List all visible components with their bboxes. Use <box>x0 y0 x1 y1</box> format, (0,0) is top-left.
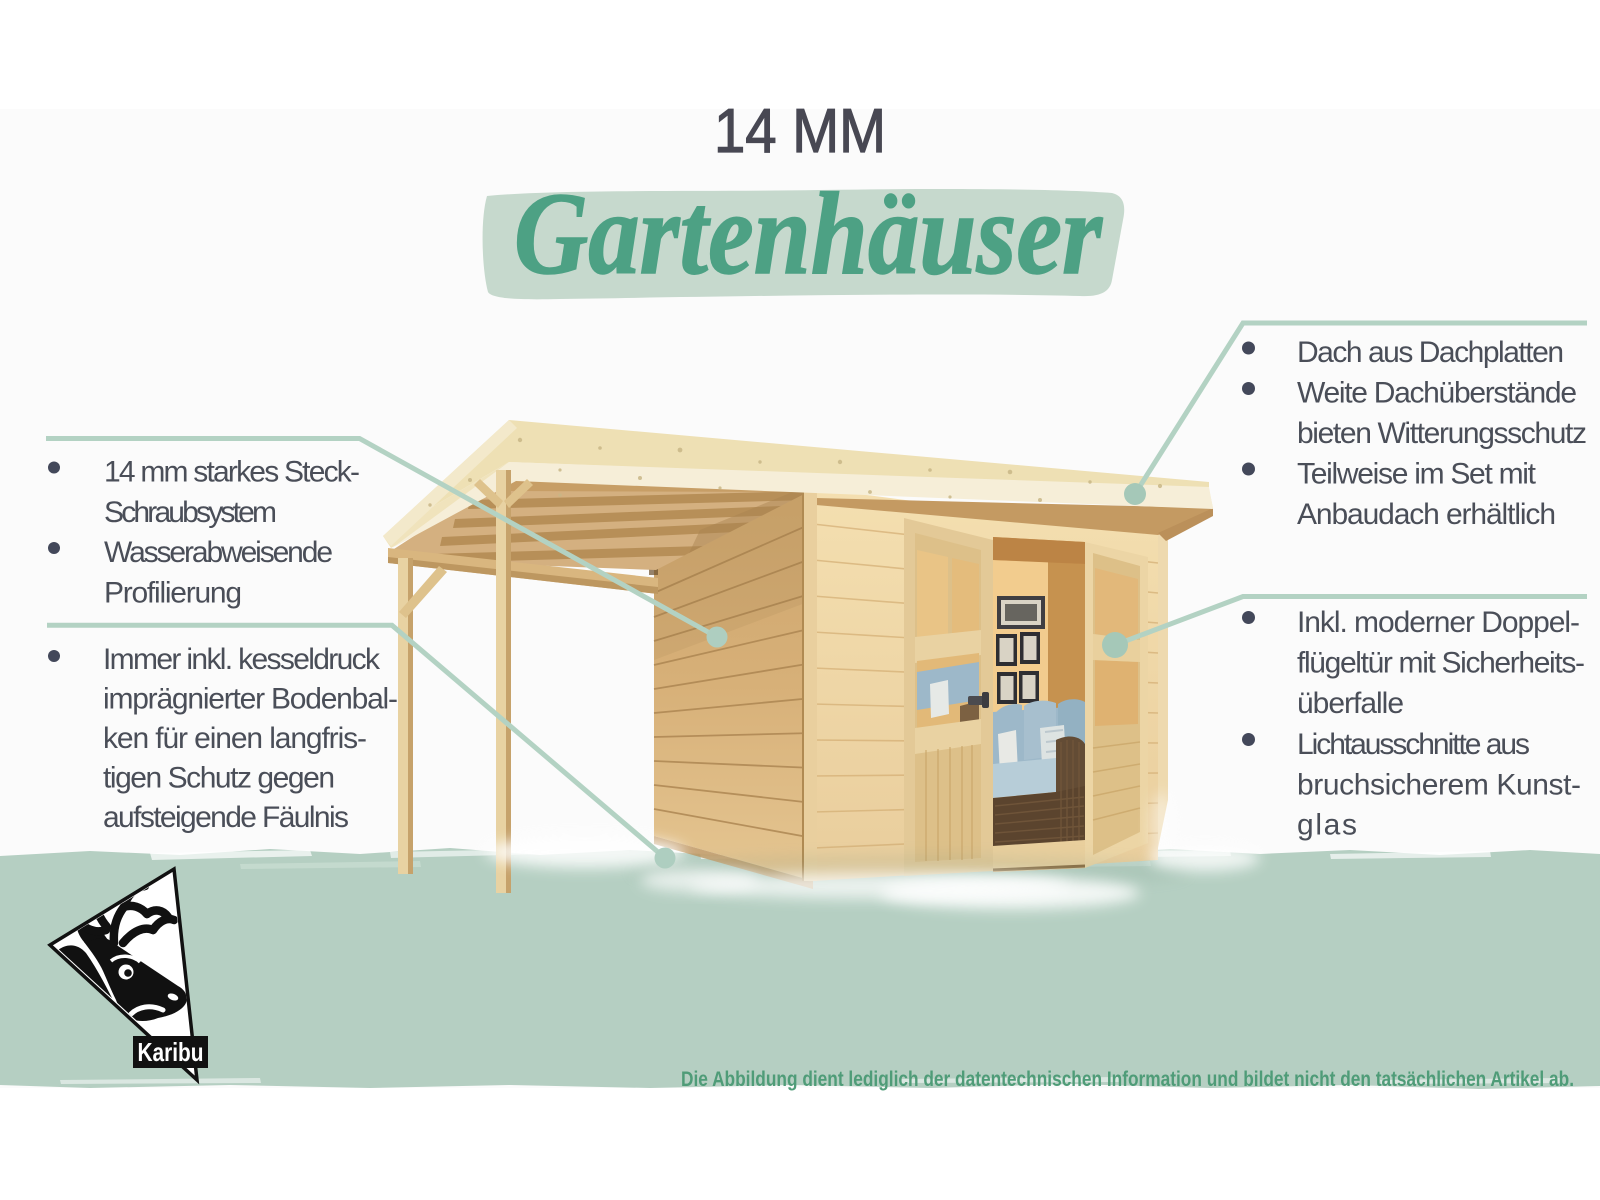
svg-text:Karibu: Karibu <box>138 1037 204 1067</box>
svg-text:imprägnierter Bodenbal-: imprägnierter Bodenbal- <box>103 683 398 716</box>
svg-text:glas: glas <box>1297 809 1357 842</box>
svg-text:Teilweise im Set mit: Teilweise im Set mit <box>1297 458 1537 491</box>
svg-text:bruchsicherem Kunst-: bruchsicherem Kunst- <box>1297 768 1581 801</box>
svg-text:ken für einen langfris-: ken für einen langfris- <box>103 722 367 755</box>
svg-text:Anbaudach erhältlich: Anbaudach erhältlich <box>1297 498 1556 531</box>
svg-text:Profilierung: Profilierung <box>104 576 242 609</box>
svg-text:Inkl. moderner Doppel-: Inkl. moderner Doppel- <box>1297 606 1580 639</box>
svg-text:Die Abbildung dient lediglich: Die Abbildung dient lediglich der datent… <box>681 1068 1574 1091</box>
svg-text:Wasserabweisende: Wasserabweisende <box>104 536 333 569</box>
svg-text:14 mm starkes Steck-: 14 mm starkes Steck- <box>104 456 360 489</box>
svg-text:14 MM: 14 MM <box>714 97 886 166</box>
svg-text:Gartenhäuser: Gartenhäuser <box>514 168 1103 299</box>
svg-text:Dach aus Dachplatten: Dach aus Dachplatten <box>1297 336 1564 369</box>
svg-text:Weite Dachüberstände: Weite Dachüberstände <box>1297 377 1577 410</box>
svg-text:flügeltür mit Sicherheits-: flügeltür mit Sicherheits- <box>1297 647 1585 680</box>
svg-text:überfalle: überfalle <box>1297 687 1404 720</box>
svg-text:aufsteigende Fäulnis: aufsteigende Fäulnis <box>103 801 349 834</box>
svg-text:Lichtausschnitte aus: Lichtausschnitte aus <box>1297 728 1530 761</box>
svg-text:Schraubsystem: Schraubsystem <box>104 496 277 529</box>
svg-text:Immer inkl. kesseldruck: Immer inkl. kesseldruck <box>103 643 381 676</box>
svg-text:tigen Schutz gegen: tigen Schutz gegen <box>103 762 335 795</box>
svg-text:bieten Witterungsschutz: bieten Witterungsschutz <box>1297 417 1587 450</box>
